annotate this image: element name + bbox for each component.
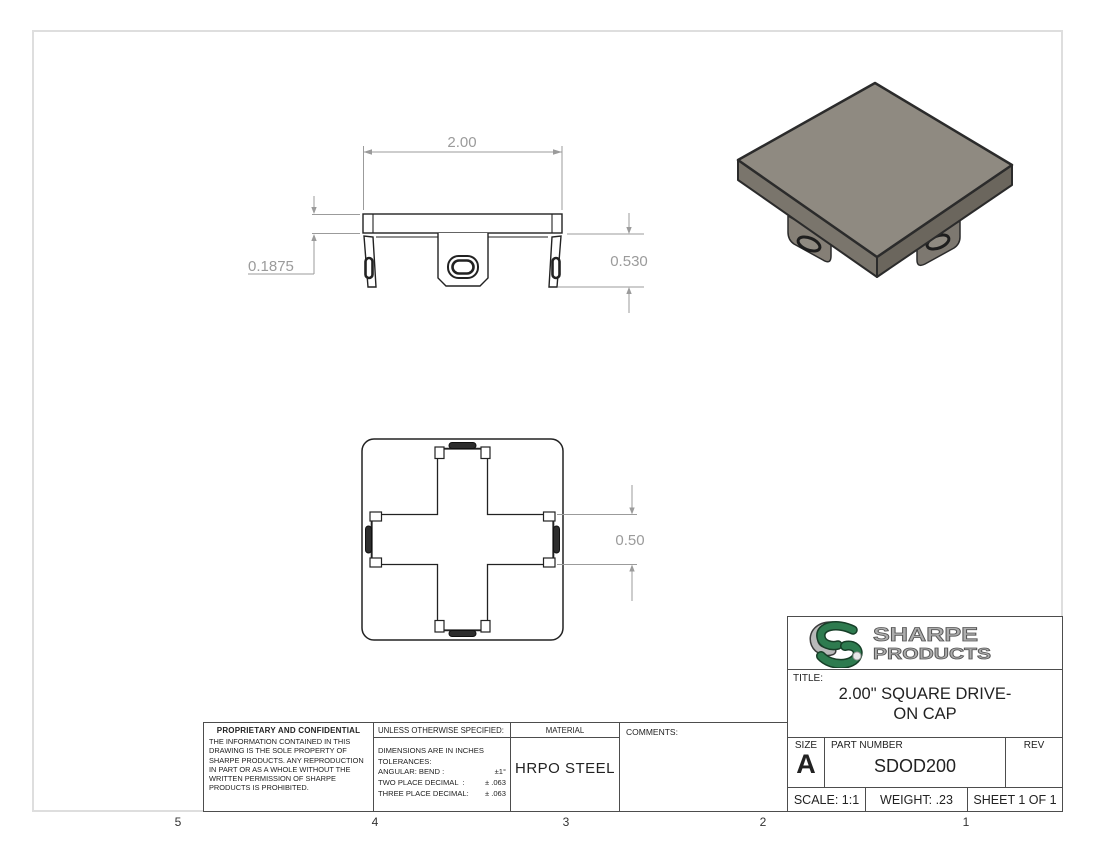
side-slot bbox=[366, 258, 373, 278]
title-cell: TITLE: 2.00" SQUARE DRIVE- ON CAP bbox=[787, 669, 1063, 738]
spec-value: ±1° bbox=[495, 767, 506, 778]
arrowhead bbox=[553, 149, 562, 155]
arrowhead bbox=[626, 227, 631, 234]
spec-label: THREE PLACE DECIMAL: bbox=[378, 789, 469, 800]
zone-label: 1 bbox=[956, 815, 976, 829]
brand-line1: SHARPE bbox=[873, 625, 978, 646]
spec-label: TWO PLACE DECIMAL : bbox=[378, 778, 465, 789]
isometric-view bbox=[710, 60, 1040, 290]
sharpe-logo-icon bbox=[814, 626, 861, 664]
material-label: MATERIAL bbox=[511, 723, 619, 738]
logo-cell: SHARPE PRODUCTS bbox=[787, 616, 1063, 670]
zone-label: 4 bbox=[365, 815, 385, 829]
rev-cell: REV bbox=[1005, 737, 1063, 788]
dim-slot-text: 0.50 bbox=[615, 532, 644, 549]
drawing-title-line1: 2.00" SQUARE DRIVE- bbox=[788, 685, 1062, 705]
arrowhead bbox=[629, 508, 634, 515]
brand-line2: PRODUCTS bbox=[873, 646, 991, 663]
dim-thickness-text: 0.1875 bbox=[248, 258, 294, 275]
dim-width bbox=[364, 146, 563, 210]
proprietary-body: THE INFORMATION CONTAINED IN THIS DRAWIN… bbox=[204, 735, 373, 793]
iso-top-face bbox=[738, 83, 1012, 257]
scale-cell: SCALE: 1:1 bbox=[787, 787, 866, 812]
title-label: TITLE: bbox=[788, 670, 1062, 684]
spec-label: ANGULAR: BEND : bbox=[378, 767, 444, 778]
proprietary-title: PROPRIETARY AND CONFIDENTIAL bbox=[204, 723, 373, 735]
tolerance-block: UNLESS OTHERWISE SPECIFIED: DIMENSIONS A… bbox=[373, 722, 511, 812]
spec-value: ± .063 bbox=[485, 789, 506, 800]
size-cell: SIZE A bbox=[787, 737, 825, 788]
arrowhead bbox=[311, 234, 316, 241]
rev-label: REV bbox=[1006, 738, 1062, 751]
zone-label: 3 bbox=[556, 815, 576, 829]
part-number-value: SDOD200 bbox=[825, 756, 1005, 777]
front-view: 2.00 0.1875 0.530 bbox=[240, 120, 660, 320]
material-value: HRPO STEEL bbox=[511, 738, 619, 798]
comments-block: COMMENTS: bbox=[619, 722, 788, 812]
arrowhead bbox=[311, 207, 316, 214]
size-value: A bbox=[788, 749, 824, 780]
part-number-label: PART NUMBER bbox=[825, 738, 1005, 751]
zone-label: 5 bbox=[168, 815, 188, 829]
spec-label: DIMENSIONS ARE IN INCHES bbox=[378, 746, 484, 757]
zone-label: 2 bbox=[753, 815, 773, 829]
spec-label: TOLERANCES: bbox=[378, 757, 431, 768]
material-block: MATERIAL HRPO STEEL bbox=[510, 722, 620, 812]
comments-label: COMMENTS: bbox=[620, 723, 787, 737]
spec-value: ± .063 bbox=[485, 778, 506, 789]
part-number-cell: PART NUMBER SDOD200 bbox=[824, 737, 1006, 788]
weight-cell: WEIGHT: .23 bbox=[865, 787, 968, 812]
bottom-view: 0.50 bbox=[340, 425, 670, 650]
tolerance-header: UNLESS OTHERWISE SPECIFIED: bbox=[374, 723, 510, 738]
arrowhead bbox=[629, 565, 634, 572]
arrowhead bbox=[364, 149, 373, 155]
side-slot bbox=[553, 258, 560, 278]
sharpe-logo: SHARPE PRODUCTS bbox=[805, 618, 1045, 668]
drawing-title-line2: ON CAP bbox=[788, 705, 1062, 725]
proprietary-block: PROPRIETARY AND CONFIDENTIAL THE INFORMA… bbox=[203, 722, 374, 812]
dim-height-text: 0.530 bbox=[610, 253, 648, 270]
arrowhead bbox=[626, 287, 631, 294]
sheet-cell: SHEET 1 OF 1 bbox=[967, 787, 1063, 812]
dim-width-text: 2.00 bbox=[447, 134, 476, 151]
